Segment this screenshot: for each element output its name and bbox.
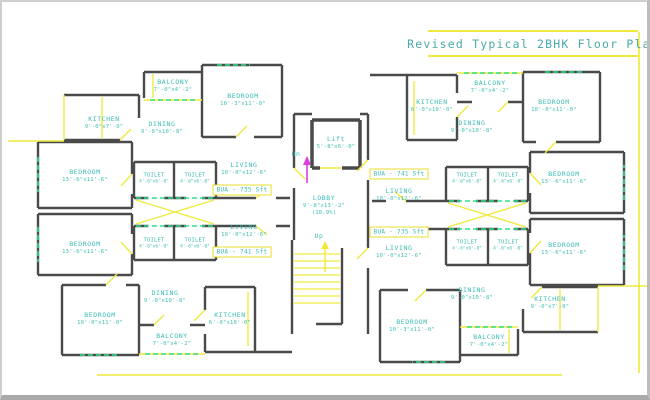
room-label-living-right-upper: LIVING10'-0"x12'-6" [376, 187, 422, 203]
room-label-living-right-lower: LIVING10'-0"x12'-6" [376, 244, 422, 260]
bua-badge-left-upper: BUA - 735 Sft [213, 185, 272, 196]
drawing-title: Revised Typical 2BHK Floor Plan [407, 37, 650, 51]
room-label-lift: Lift5'-8"x6'-0" [317, 135, 356, 151]
up-arrow [321, 241, 329, 249]
room-label-kitchen-tr: KITCHEN6'-0"x10'-0" [411, 98, 453, 114]
room-label-lobby: LOBBY9'-8"x13'-2"(10.9%) [303, 194, 345, 218]
room-label-balcony-br: BALCONY7'-0"x4'-2" [470, 333, 509, 349]
room-label-dining-br: DINING9'-0"x10'-8" [451, 286, 493, 302]
room-label-toilet-lu1: TOILET4'-6"x6'-0" [139, 172, 169, 185]
room-label-toilet-lu2: TOILET4'-6"x6'-0" [180, 172, 210, 185]
room-label-bedroom-br: BEDROOM10'-3"x11'-0" [389, 318, 435, 334]
room-label-toilet-ll1: TOILET4'-6"x6'-0" [139, 237, 169, 250]
room-label-bedroom-right-lower: BEDROOM13'-6"x11'-6" [541, 241, 587, 257]
room-label-kitchen-tl: KITCHEN9'-0"x7'-0" [85, 115, 124, 131]
bua-badge-right-lower: BUA - 735 Sft [370, 227, 429, 238]
room-label-living-left-lower: LIVING10'-0"x12'-6" [221, 223, 267, 239]
stair-up-label: Up [315, 232, 324, 240]
stair-treads [294, 160, 368, 303]
room-label-balcony-bl: BALCONY7'-0"x4'-2" [153, 332, 192, 348]
room-label-bedroom-right-upper: BEDROOM13'-6"x11'-6" [541, 170, 587, 186]
room-label-dining-bl: DINING9'-0"x10'-8" [144, 289, 186, 305]
room-label-toilet-rl2: TOILET4'-6"x6'-0" [493, 239, 523, 252]
bua-badge-left-lower: BUA - 741 Sft [213, 247, 272, 258]
room-label-bedroom-tr: BEDROOM10'-0"x11'-0" [531, 98, 577, 114]
bua-badge-right-upper: BUA - 741 Sft [370, 169, 429, 180]
room-label-dining-tl: DINING9'-0"x10'-8" [141, 120, 183, 136]
room-label-toilet-ll2: TOILET4'-6"x6'-0" [180, 237, 210, 250]
room-label-toilet-ru2: TOILET4'-6"x6'-0" [493, 172, 523, 185]
room-label-kitchen-br: KITCHEN9'-0"x7'-0" [531, 295, 570, 311]
room-label-bedroom-left-upper: BEDROOM13'-6"x11'-6" [62, 168, 108, 184]
room-label-toilet-rl1: TOILET4'-6"x6'-0" [452, 239, 482, 252]
room-label-living-left-upper: LIVING10'-0"x12'-6" [221, 161, 267, 177]
room-label-balcony-tl: BALCONY7'-0"x4'-2" [154, 78, 193, 94]
room-label-bedroom-tl: BEDROOM10'-3"x11'-0" [220, 92, 266, 108]
room-label-balcony-tr: BALCONY7'-0"x4'-2" [471, 79, 510, 95]
room-label-bedroom-bl: BEDROOM10'-0"x11'-0" [77, 311, 123, 327]
room-label-kitchen-bl: KITCHEN6'-0"x10'-0" [209, 311, 251, 327]
floor-plan-page: Revised Typical 2BHK Floor Plan KITCHEN9… [0, 0, 650, 400]
title-block: Revised Typical 2BHK Floor Plan [428, 30, 638, 57]
room-label-toilet-ru1: TOILET4'-6"x6'-0" [452, 172, 482, 185]
room-label-bedroom-left-lower: BEDROOM13'-6"x11'-6" [62, 240, 108, 256]
stair-dn-label: Dn [292, 150, 301, 158]
room-label-dining-tr: DINING9'-0"x10'-8" [451, 119, 493, 135]
